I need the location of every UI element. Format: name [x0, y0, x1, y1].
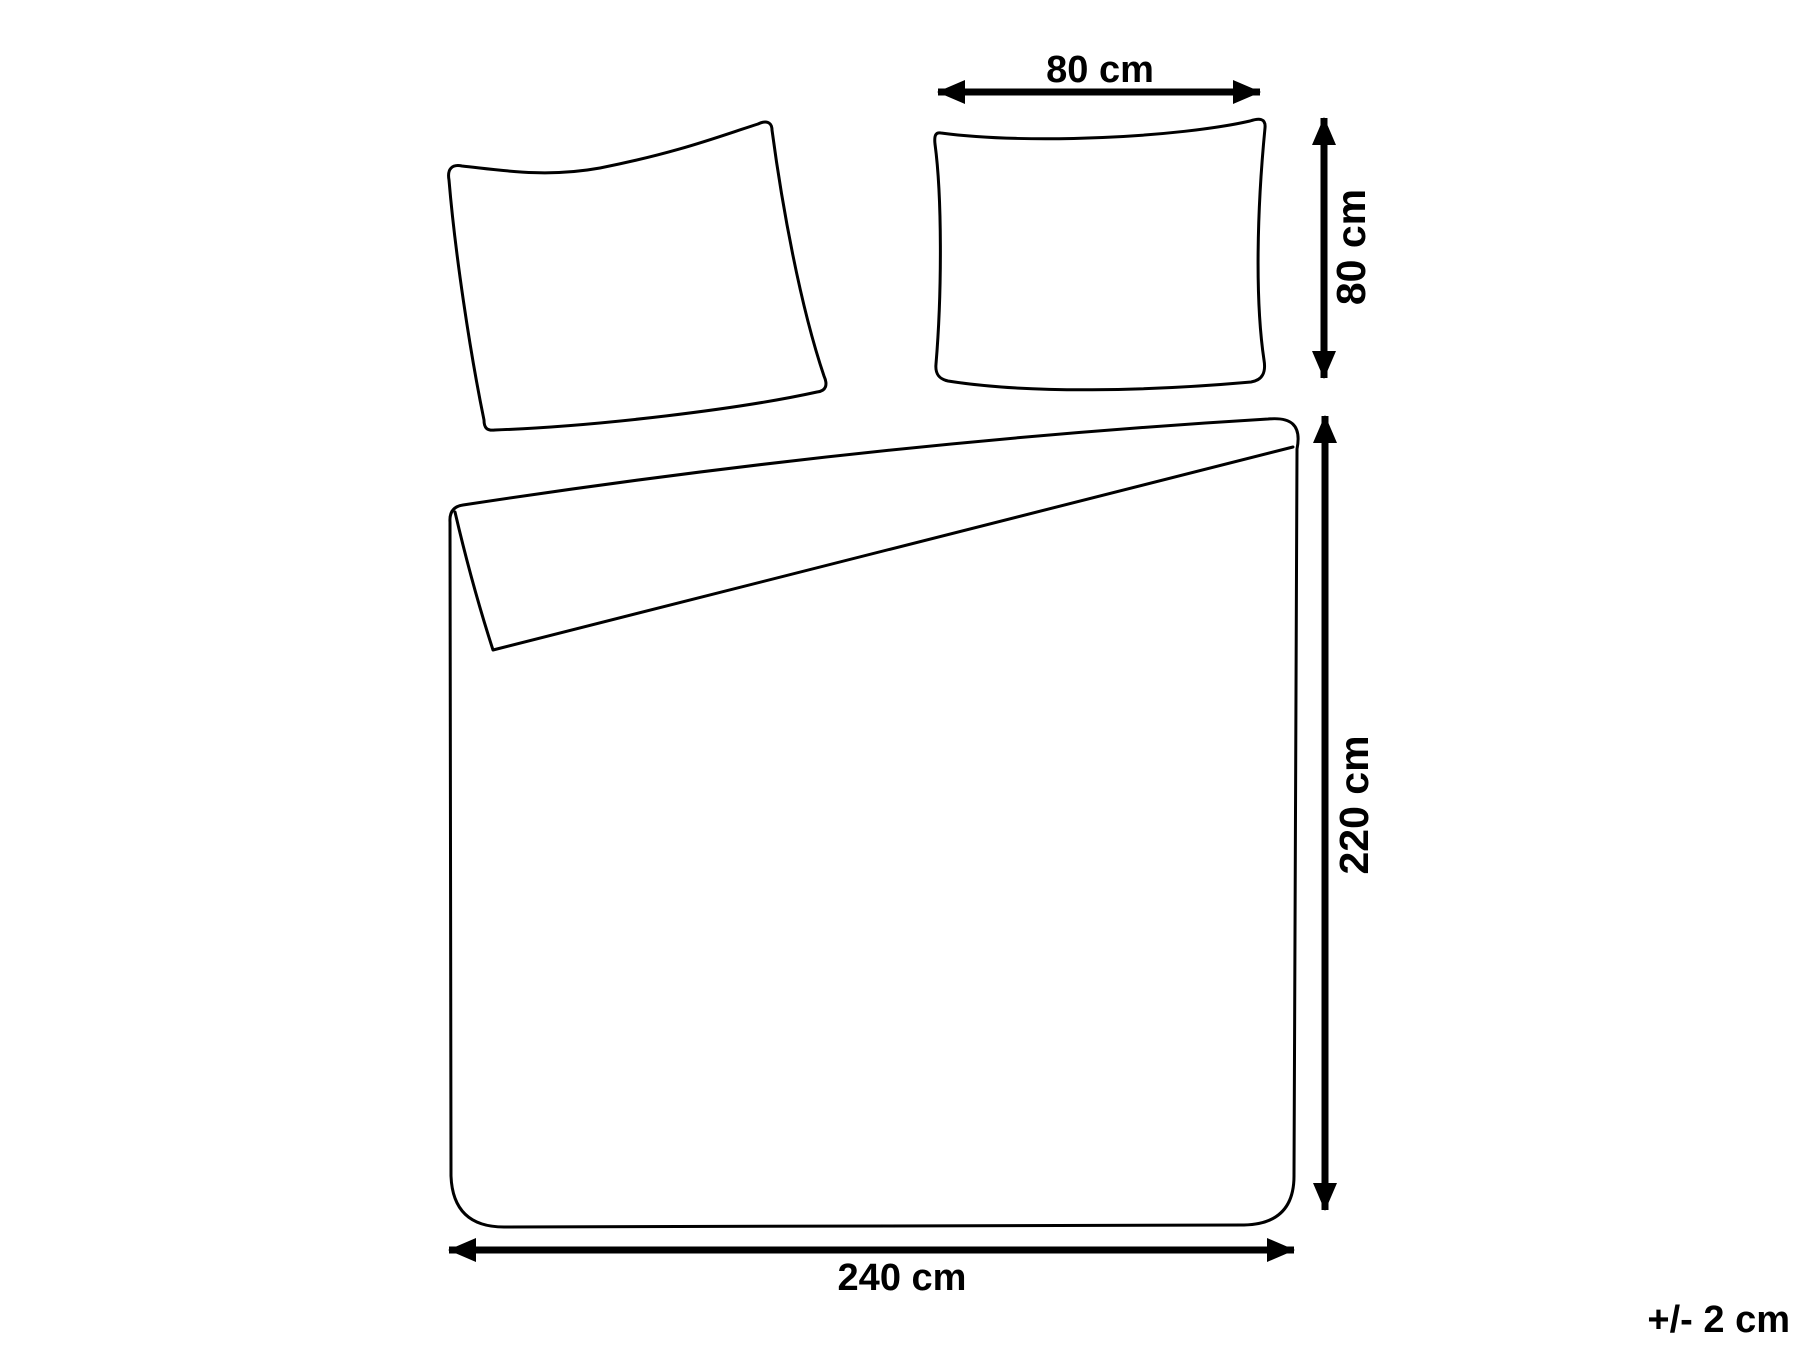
pillow-height-label: 80 cm	[1328, 189, 1374, 305]
duvet-width-label: 240 cm	[838, 1257, 967, 1299]
pillow-width-label: 80 cm	[1046, 49, 1154, 91]
duvet-fold-line-icon	[455, 447, 1293, 650]
bedding-dimensions-diagram: 80 cm 80 cm 220 cm 240 cm +/- 2 cm	[0, 0, 1800, 1350]
duvet-height-label: 220 cm	[1331, 735, 1377, 874]
duvet-outline-icon	[450, 419, 1298, 1227]
tolerance-label: +/- 2 cm	[1647, 1299, 1790, 1341]
left-pillow-outline-icon	[449, 122, 826, 430]
dimension-diagram-page: 80 cm 80 cm 220 cm 240 cm +/- 2 cm	[0, 0, 1800, 1350]
right-pillow-outline-icon	[935, 119, 1265, 390]
